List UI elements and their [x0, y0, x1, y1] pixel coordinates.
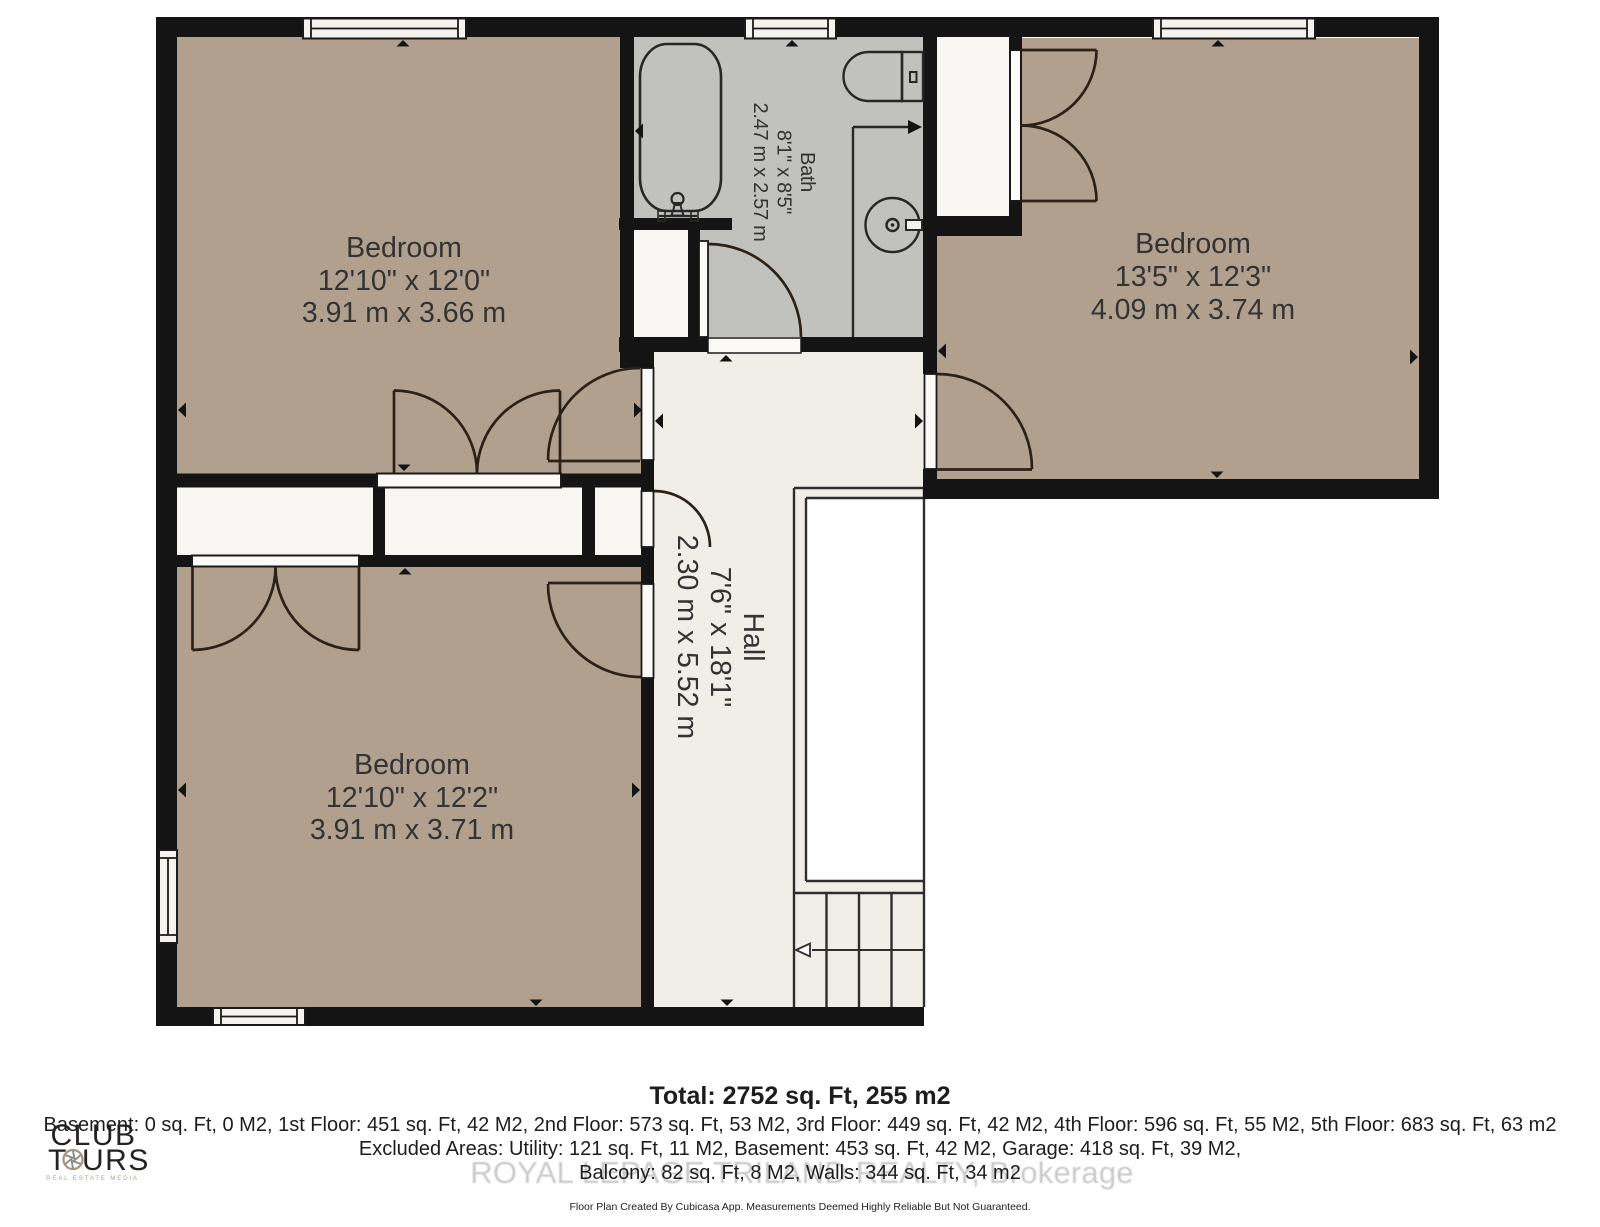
svg-text:8'1" x 8'5": 8'1" x 8'5"	[773, 130, 795, 214]
svg-text:Bedroom: Bedroom	[1135, 228, 1251, 260]
svg-text:3.91 m x 3.71 m: 3.91 m x 3.71 m	[310, 814, 514, 846]
svg-text:Balcony: 82 sq. Ft, 8 M2, Wall: Balcony: 82 sq. Ft, 8 M2, Walls: 344 sq.…	[579, 1162, 1021, 1184]
svg-text:12'10" x 12'2": 12'10" x 12'2"	[326, 782, 498, 814]
svg-text:3.91 m x 3.66 m: 3.91 m x 3.66 m	[302, 297, 506, 329]
svg-text:Basement: 0 sq. Ft, 0 M2, 1st: Basement: 0 sq. Ft, 0 M2, 1st Floor: 451…	[44, 1114, 1557, 1136]
svg-text:Bath: Bath	[796, 152, 818, 192]
svg-text:URS: URS	[82, 1144, 150, 1177]
svg-text:Bedroom: Bedroom	[354, 749, 470, 781]
svg-text:2.30 m x 5.52 m: 2.30 m x 5.52 m	[671, 535, 703, 739]
svg-text:REAL ESTATE MEDIA: REAL ESTATE MEDIA	[46, 1175, 139, 1182]
svg-text:7'6" x 18'1": 7'6" x 18'1"	[704, 567, 736, 707]
svg-text:Excluded Areas: Utility: 121 s: Excluded Areas: Utility: 121 sq. Ft, 11 …	[359, 1138, 1241, 1160]
svg-text:4.09 m x 3.74 m: 4.09 m x 3.74 m	[1091, 294, 1295, 326]
svg-text:Floor Plan Created By Cubicasa: Floor Plan Created By Cubicasa App. Meas…	[569, 1201, 1030, 1213]
svg-text:Total: 2752 sq. Ft, 255 m2: Total: 2752 sq. Ft, 255 m2	[649, 1082, 950, 1110]
svg-text:13'5" x 12'3": 13'5" x 12'3"	[1115, 261, 1271, 293]
svg-text:T: T	[48, 1144, 68, 1177]
svg-text:12'10" x 12'0": 12'10" x 12'0"	[318, 265, 490, 297]
svg-text:Hall: Hall	[737, 612, 769, 661]
svg-text:2.47 m x 2.57 m: 2.47 m x 2.57 m	[749, 103, 771, 242]
svg-text:Bedroom: Bedroom	[346, 232, 462, 264]
